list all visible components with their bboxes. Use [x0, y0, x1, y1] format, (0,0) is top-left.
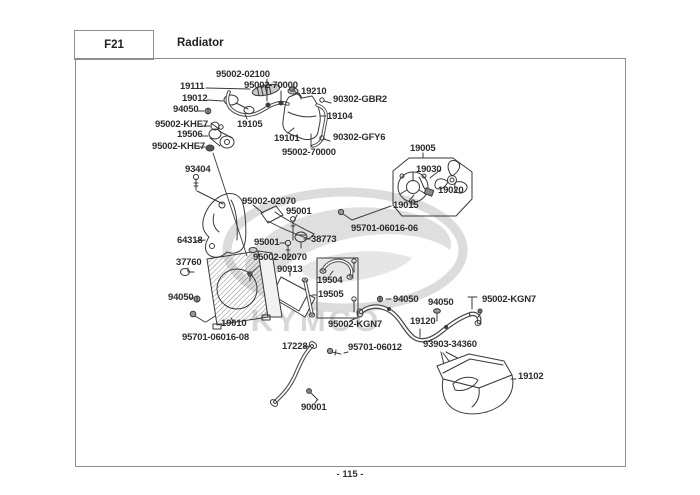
part-label-19005: 19005 [410, 144, 435, 154]
part-label-19105: 19105 [237, 120, 262, 130]
bolt-95701-06012 [327, 348, 341, 355]
part-label-90302-gbr2: 90302-GBR2 [333, 95, 387, 105]
part-label-19104: 19104 [327, 112, 352, 122]
part-label-19101: 19101 [274, 134, 299, 144]
part-label-19111: 19111 [180, 82, 204, 92]
bolt-94050-b [194, 296, 200, 302]
part-label-19012: 19012 [182, 94, 207, 104]
part-label-94050-b: 94050 [168, 293, 193, 303]
part-label-19020: 19020 [438, 186, 463, 196]
part-label-95002-70000-a: 95002-70000 [244, 81, 298, 91]
bolt-90302-gbr2 [320, 98, 331, 103]
part-label-95002-khe7-b: 95002-KHE7 [152, 142, 205, 152]
part-label-95002-70000-b: 95002-70000 [282, 148, 336, 158]
part-label-95002-kgn7-b: 95002-KGN7 [328, 320, 382, 330]
part-label-19102: 19102 [518, 372, 543, 382]
part-label-90913: 90913 [277, 265, 302, 275]
part-label-95701-06016-06: 95701-06016-06 [351, 224, 418, 234]
part-label-19506: 19506 [177, 130, 202, 140]
part-label-19030: 19030 [416, 165, 441, 175]
part-label-94050-d: 94050 [428, 298, 453, 308]
part-label-95701-06016-08: 95701-06016-08 [182, 333, 249, 343]
part-label-19120: 19120 [410, 317, 435, 327]
part-label-64318: 64318 [177, 236, 202, 246]
part-label-94050-c: 94050 [393, 295, 418, 305]
part-label-95001-a: 95001 [286, 207, 311, 217]
bolt-90001 [307, 389, 318, 403]
part-label-37760: 37760 [176, 258, 201, 268]
plug-37760 [181, 268, 195, 276]
part-label-19010: 19010 [221, 319, 246, 329]
part-label-93903-34360: 93903-34360 [423, 340, 477, 350]
part-label-38773: 38773 [311, 235, 336, 245]
part-label-90302-gfy6: 90302-GFY6 [333, 133, 385, 143]
clamp-95002-khe7-b [206, 145, 214, 151]
part-label-95002-02100: 95002-02100 [216, 70, 270, 80]
part-label-95001-b: 95001 [254, 238, 279, 248]
part-label-19015: 19015 [393, 201, 418, 211]
page-number: - 115 - [337, 469, 364, 480]
shroud-19102 [437, 354, 513, 414]
part-label-90001: 90001 [301, 403, 326, 413]
part-label-94050-a: 94050 [173, 105, 198, 115]
diagram-canvas: KYMCO [0, 0, 700, 495]
part-label-19505: 19505 [318, 290, 343, 300]
part-label-19210: 19210 [301, 87, 326, 97]
parts-catalog-page: KYMCO [0, 0, 700, 495]
part-label-95002-kgn7-a: 95002-KGN7 [482, 295, 536, 305]
bolt-93404 [193, 174, 223, 204]
bolt-95701-06016-08 [190, 311, 215, 322]
bolt-94050-a [205, 108, 211, 114]
part-label-95701-06012: 95701-06012 [348, 343, 402, 353]
page-code-box: F21 [74, 30, 154, 60]
part-label-19504: 19504 [317, 276, 342, 286]
part-label-95002-02070-b: 95002-02070 [253, 253, 307, 263]
part-label-17228: 17228 [282, 342, 307, 352]
page-title: Radiator [177, 37, 224, 49]
part-label-93404: 93404 [185, 165, 210, 175]
